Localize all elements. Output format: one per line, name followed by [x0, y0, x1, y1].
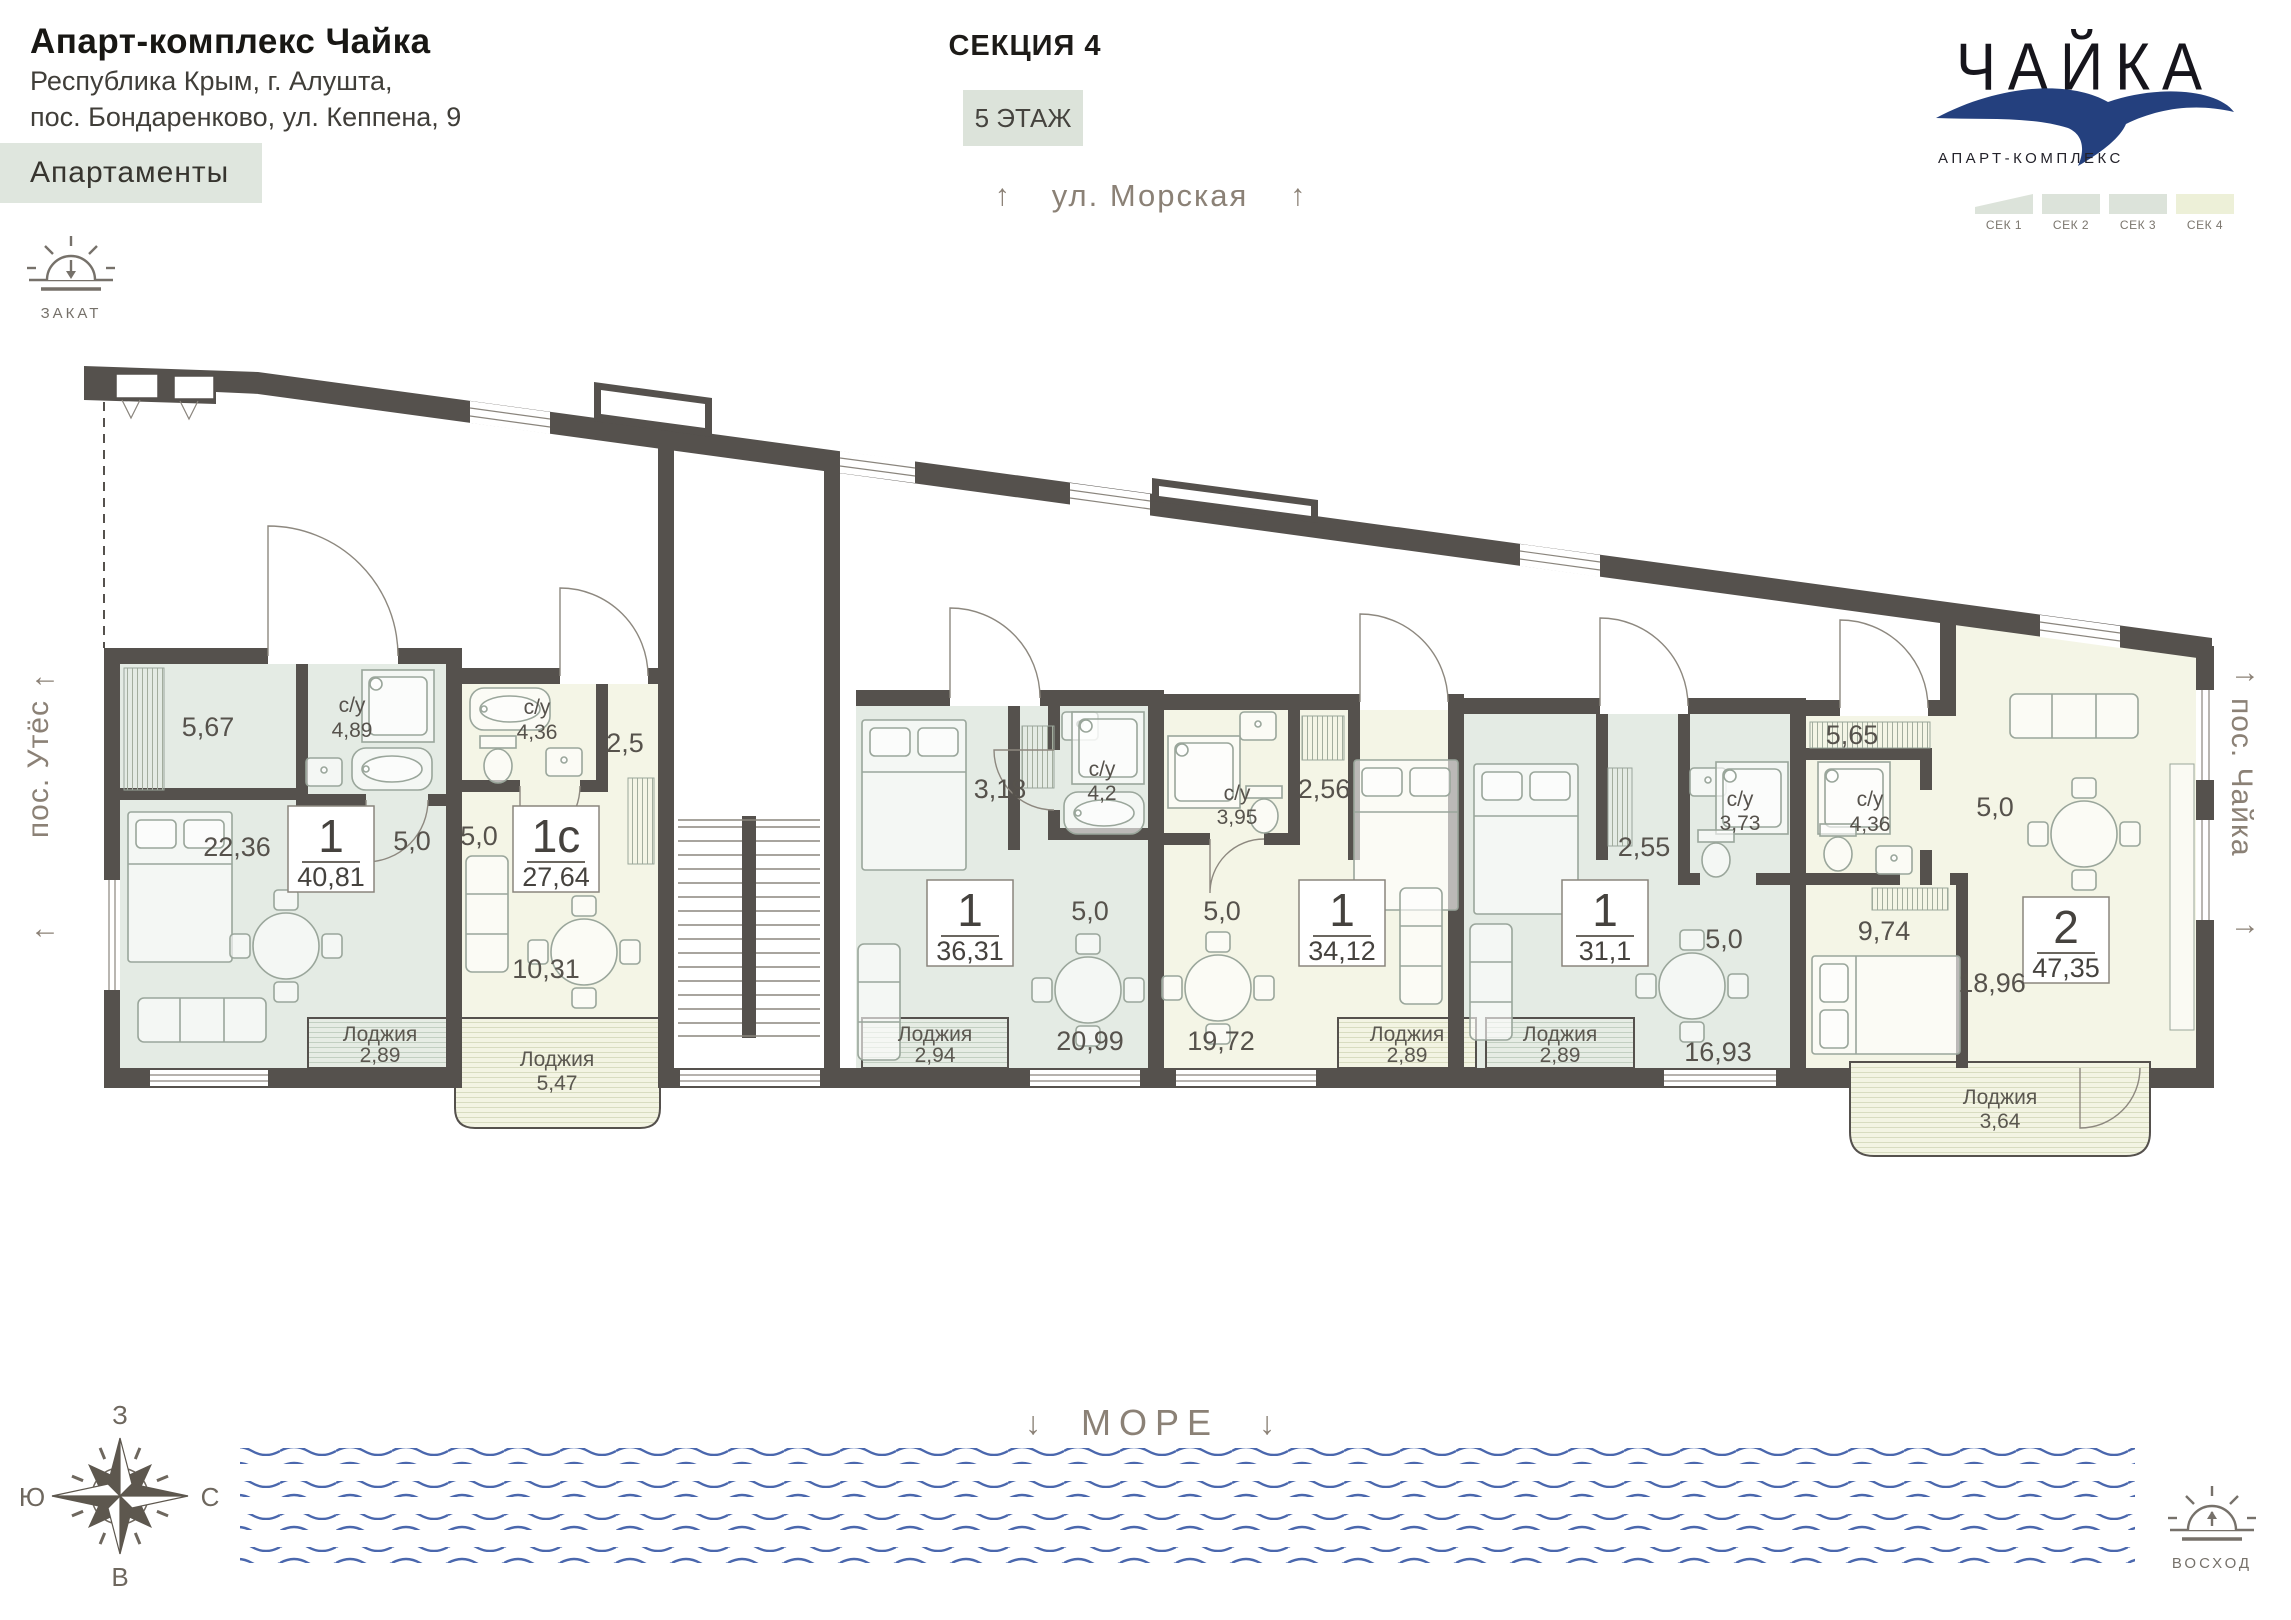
svg-text:5,0: 5,0: [1976, 792, 2014, 822]
badge-apartment-1[interactable]: 1 40,81: [288, 806, 374, 892]
svg-text:27,64: 27,64: [522, 862, 590, 892]
svg-text:4,89: 4,89: [332, 719, 373, 742]
svg-text:5,0: 5,0: [460, 821, 498, 851]
svg-text:1: 1: [318, 810, 344, 862]
stairwell-stairs: [678, 816, 820, 1038]
badge-apartment-3[interactable]: 1 34,12: [1299, 880, 1385, 966]
svg-text:3,95: 3,95: [1217, 806, 1258, 829]
compass-icon: З Ю С В: [19, 1400, 220, 1592]
svg-text:5,0: 5,0: [1071, 896, 1109, 926]
svg-text:2,56: 2,56: [1298, 774, 1351, 804]
page: Апарт-комплекс Чайка Республика Крым, г.…: [0, 0, 2291, 1620]
svg-text:Лоджия: Лоджия: [520, 1048, 594, 1071]
svg-text:1: 1: [957, 884, 983, 936]
svg-text:с/у: с/у: [1089, 758, 1116, 781]
svg-text:с/у: с/у: [1224, 782, 1251, 805]
svg-text:3,73: 3,73: [1720, 812, 1761, 835]
svg-text:с/у: с/у: [524, 696, 551, 719]
sunset-label: ЗАКАТ: [41, 305, 102, 322]
svg-text:с/у: с/у: [339, 694, 366, 717]
svg-text:36,31: 36,31: [936, 936, 1004, 966]
svg-text:5,0: 5,0: [393, 826, 431, 856]
svg-text:4,36: 4,36: [1850, 813, 1891, 836]
loggia-apartment-5[interactable]: [1850, 1062, 2150, 1156]
badge-apartment-1c[interactable]: 1с 27,64: [513, 806, 599, 892]
badge-apartment-2[interactable]: 1 36,31: [927, 880, 1013, 966]
svg-text:1: 1: [1329, 884, 1355, 936]
sunrise-label: ВОСХОД: [2172, 1555, 2252, 1572]
svg-text:2,89: 2,89: [360, 1044, 401, 1067]
svg-text:18,96: 18,96: [1958, 968, 2026, 998]
svg-text:47,35: 47,35: [2032, 953, 2100, 983]
svg-text:4,36: 4,36: [517, 721, 558, 744]
compass-east-label: В: [111, 1562, 128, 1592]
svg-text:5,67: 5,67: [182, 712, 235, 742]
svg-text:Лоджия: Лоджия: [898, 1023, 972, 1046]
svg-text:с/у: с/у: [1857, 788, 1884, 811]
svg-text:4,2: 4,2: [1087, 782, 1116, 805]
svg-text:1с: 1с: [532, 810, 581, 862]
svg-text:20,99: 20,99: [1056, 1026, 1124, 1056]
svg-text:1: 1: [1592, 884, 1618, 936]
badge-apartment-4[interactable]: 1 31,1: [1562, 880, 1648, 966]
svg-text:Лоджия: Лоджия: [1370, 1023, 1444, 1046]
svg-text:5,0: 5,0: [1705, 924, 1743, 954]
compass-south-label: Ю: [19, 1482, 45, 1512]
svg-text:3,18: 3,18: [974, 774, 1027, 804]
floor-plan-canvas: 1 40,81 1с 27,64 1 36,31 1 34,12: [0, 0, 2291, 1620]
compass-west-label: З: [112, 1400, 128, 1430]
svg-text:2,89: 2,89: [1540, 1044, 1581, 1067]
svg-text:31,1: 31,1: [1579, 936, 1632, 966]
svg-text:40,81: 40,81: [297, 862, 365, 892]
sunrise-icon: [2168, 1486, 2256, 1539]
svg-text:9,74: 9,74: [1858, 916, 1911, 946]
svg-text:34,12: 34,12: [1308, 936, 1376, 966]
compass-north-label: С: [201, 1482, 220, 1512]
svg-text:2,55: 2,55: [1618, 832, 1671, 862]
svg-text:2,89: 2,89: [1387, 1044, 1428, 1067]
svg-text:Лоджия: Лоджия: [1963, 1086, 2037, 1109]
svg-text:16,93: 16,93: [1684, 1037, 1752, 1067]
svg-text:22,36: 22,36: [203, 832, 271, 862]
svg-text:3,64: 3,64: [1980, 1110, 2021, 1133]
svg-text:10,31: 10,31: [512, 954, 580, 984]
svg-text:Лоджия: Лоджия: [1523, 1023, 1597, 1046]
svg-text:5,47: 5,47: [537, 1072, 578, 1095]
svg-text:2,5: 2,5: [606, 728, 644, 758]
svg-text:5,65: 5,65: [1826, 720, 1879, 750]
sea-waves: [240, 1448, 2135, 1563]
svg-text:5,0: 5,0: [1203, 896, 1241, 926]
svg-text:2,94: 2,94: [915, 1044, 956, 1067]
svg-text:2: 2: [2053, 901, 2079, 953]
sunset-icon: [27, 236, 115, 289]
svg-text:с/у: с/у: [1727, 788, 1754, 811]
svg-text:Лоджия: Лоджия: [343, 1023, 417, 1046]
svg-text:19,72: 19,72: [1187, 1026, 1255, 1056]
badge-apartment-5[interactable]: 2 47,35: [2023, 897, 2109, 983]
